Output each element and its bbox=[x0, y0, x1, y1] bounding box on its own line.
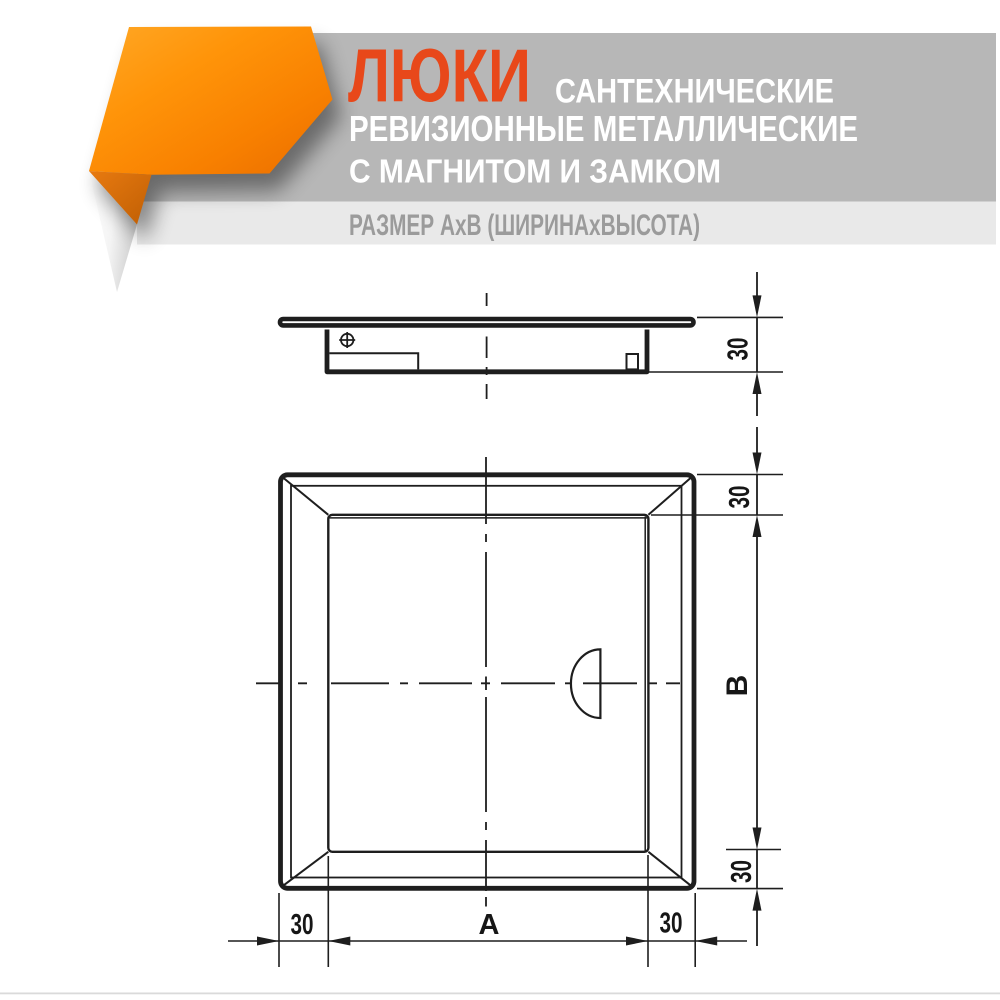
svg-text:30: 30 bbox=[724, 486, 756, 509]
svg-text:30: 30 bbox=[291, 909, 314, 941]
svg-text:30: 30 bbox=[726, 860, 758, 883]
svg-text:САНТЕХНИЧЕСКИЕ: САНТЕХНИЧЕСКИЕ bbox=[555, 72, 834, 110]
svg-text:А: А bbox=[479, 909, 500, 941]
svg-text:30: 30 bbox=[660, 908, 683, 940]
svg-text:30: 30 bbox=[723, 338, 755, 361]
svg-text:РЕВИЗИОННЫЕ МЕТАЛЛИЧЕСКИЕ: РЕВИЗИОННЫЕ МЕТАЛЛИЧЕСКИЕ bbox=[349, 108, 858, 149]
svg-text:С МАГНИТОМ И ЗАМКОМ: С МАГНИТОМ И ЗАМКОМ bbox=[349, 154, 721, 191]
svg-text:ЛЮКИ: ЛЮКИ bbox=[348, 34, 531, 118]
svg-text:В: В bbox=[721, 675, 754, 697]
svg-text:РАЗМЕР АхВ (ШИРИНАхВЫСОТА): РАЗМЕР АхВ (ШИРИНАхВЫСОТА) bbox=[349, 209, 700, 242]
